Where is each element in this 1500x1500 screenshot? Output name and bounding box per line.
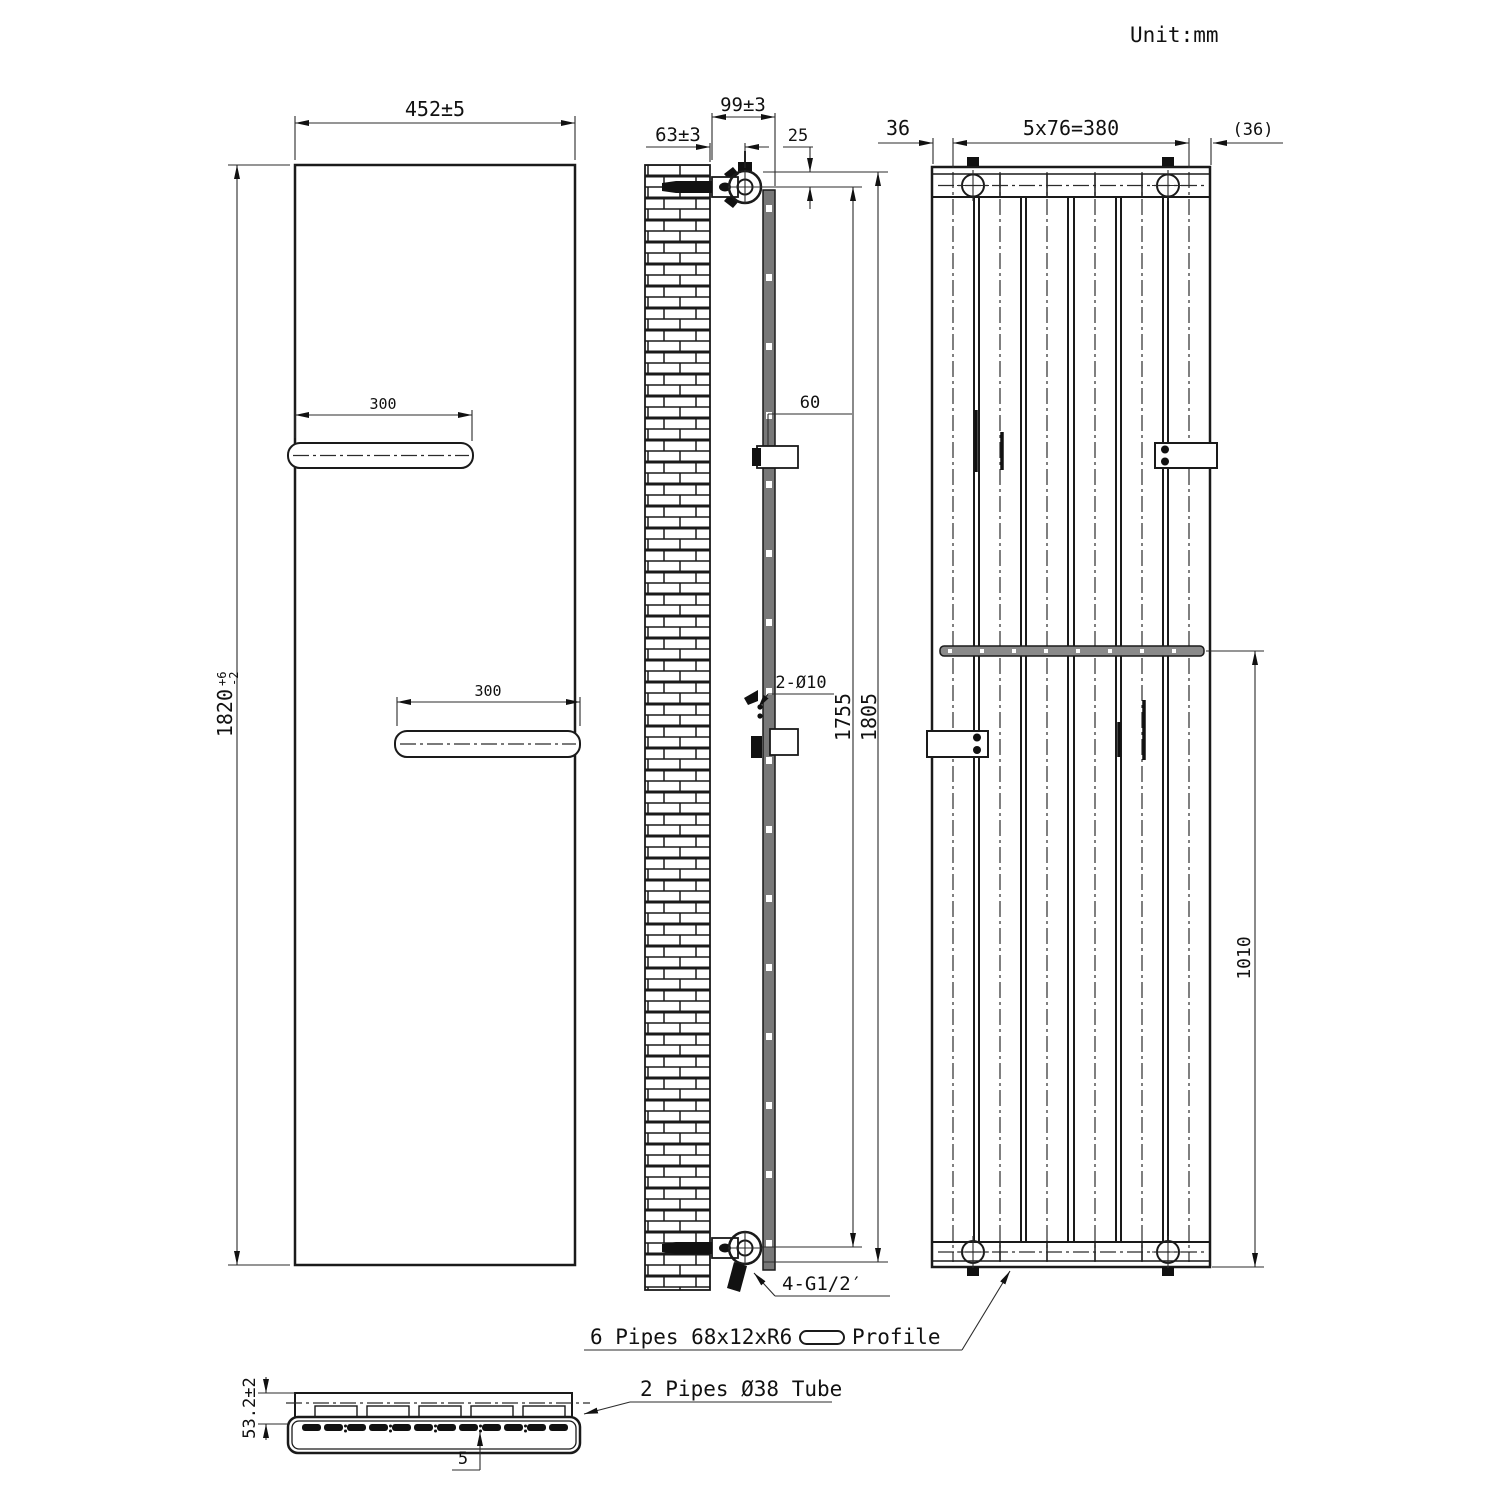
dim-overall-height: 1805 <box>857 693 881 741</box>
wall-bracket-bottom <box>927 731 988 757</box>
dim-bracket-span: 1010 <box>1234 936 1255 979</box>
pipe-profile-symbol <box>800 1331 844 1344</box>
mounting-bolt <box>967 1267 979 1276</box>
dim-valve-offset: 25 <box>788 126 808 146</box>
dim-bracket-width: 60 <box>800 393 820 413</box>
rear-view: 36 5x76=380 (36) 1010 <box>878 116 1283 1276</box>
dim-front-height: 1820 <box>213 689 237 737</box>
wall-bracket-top <box>1155 443 1217 468</box>
front-panel <box>295 165 575 1265</box>
shelf-bracket-side-top <box>752 446 798 468</box>
radiator-technical-drawing: Unit:mm 452±5 1820 +6 -2 300 300 <box>0 0 1500 1500</box>
radiator-pipes <box>932 172 1210 1262</box>
dim-wall-to-valve: 63±3 <box>655 124 701 146</box>
section-view: 53.2±2 5 <box>240 1377 590 1470</box>
dim-front-height-tol-minus: -2 <box>227 672 241 686</box>
shelf-bracket-side-bottom <box>751 729 798 758</box>
bottom-header <box>932 1236 1210 1276</box>
unit-label: Unit:mm <box>1130 23 1219 47</box>
note-pipe-connections: 4-G1/2′ <box>782 1273 862 1295</box>
dim-shelf-bottom-length: 300 <box>474 682 501 700</box>
front-panel-section <box>288 1417 580 1453</box>
mounting-bolt <box>1162 1267 1174 1276</box>
note-pipe-profile: 6 Pipes 68x12xR6 <box>590 1325 792 1349</box>
towel-bar <box>940 646 1204 656</box>
mounting-bolt <box>967 157 979 166</box>
mounting-bolt <box>1162 157 1174 166</box>
dim-section-depth: 53.2±2 <box>240 1377 260 1438</box>
dim-pipe-pitch: 5x76=380 <box>1023 116 1119 140</box>
dim-wall-to-front: 99±3 <box>720 94 766 116</box>
pipe-row-section <box>302 1424 568 1433</box>
drawing-canvas: Unit:mm 452±5 1820 +6 -2 300 300 <box>0 0 1500 1500</box>
dim-pipe-centers-height: 1755 <box>831 693 855 741</box>
dim-panel-edge-right: (36) <box>1233 120 1274 140</box>
dim-panel-edge-left: 36 <box>886 116 910 140</box>
side-view: 63±3 99±3 25 1755 1805 60 2-Ø10 <box>645 94 890 1296</box>
top-header <box>932 157 1210 201</box>
dim-front-width: 452±5 <box>405 97 465 121</box>
shelf-hook-slots <box>976 410 1144 760</box>
dim-shelf-top-length: 300 <box>369 395 396 413</box>
wall-hatch <box>645 165 710 1290</box>
dim-pipe-gap: 5 <box>458 1449 468 1469</box>
dim-front-height-group: 1820 +6 -2 <box>213 672 241 738</box>
note-profile-label: Profile <box>852 1325 941 1349</box>
note-mounting-holes: 2-Ø10 <box>775 673 826 693</box>
note-tube: 2 Pipes Ø38 Tube <box>640 1377 842 1401</box>
section-tabs <box>315 1406 565 1417</box>
front-view: 452±5 1820 +6 -2 300 300 <box>213 97 580 1265</box>
